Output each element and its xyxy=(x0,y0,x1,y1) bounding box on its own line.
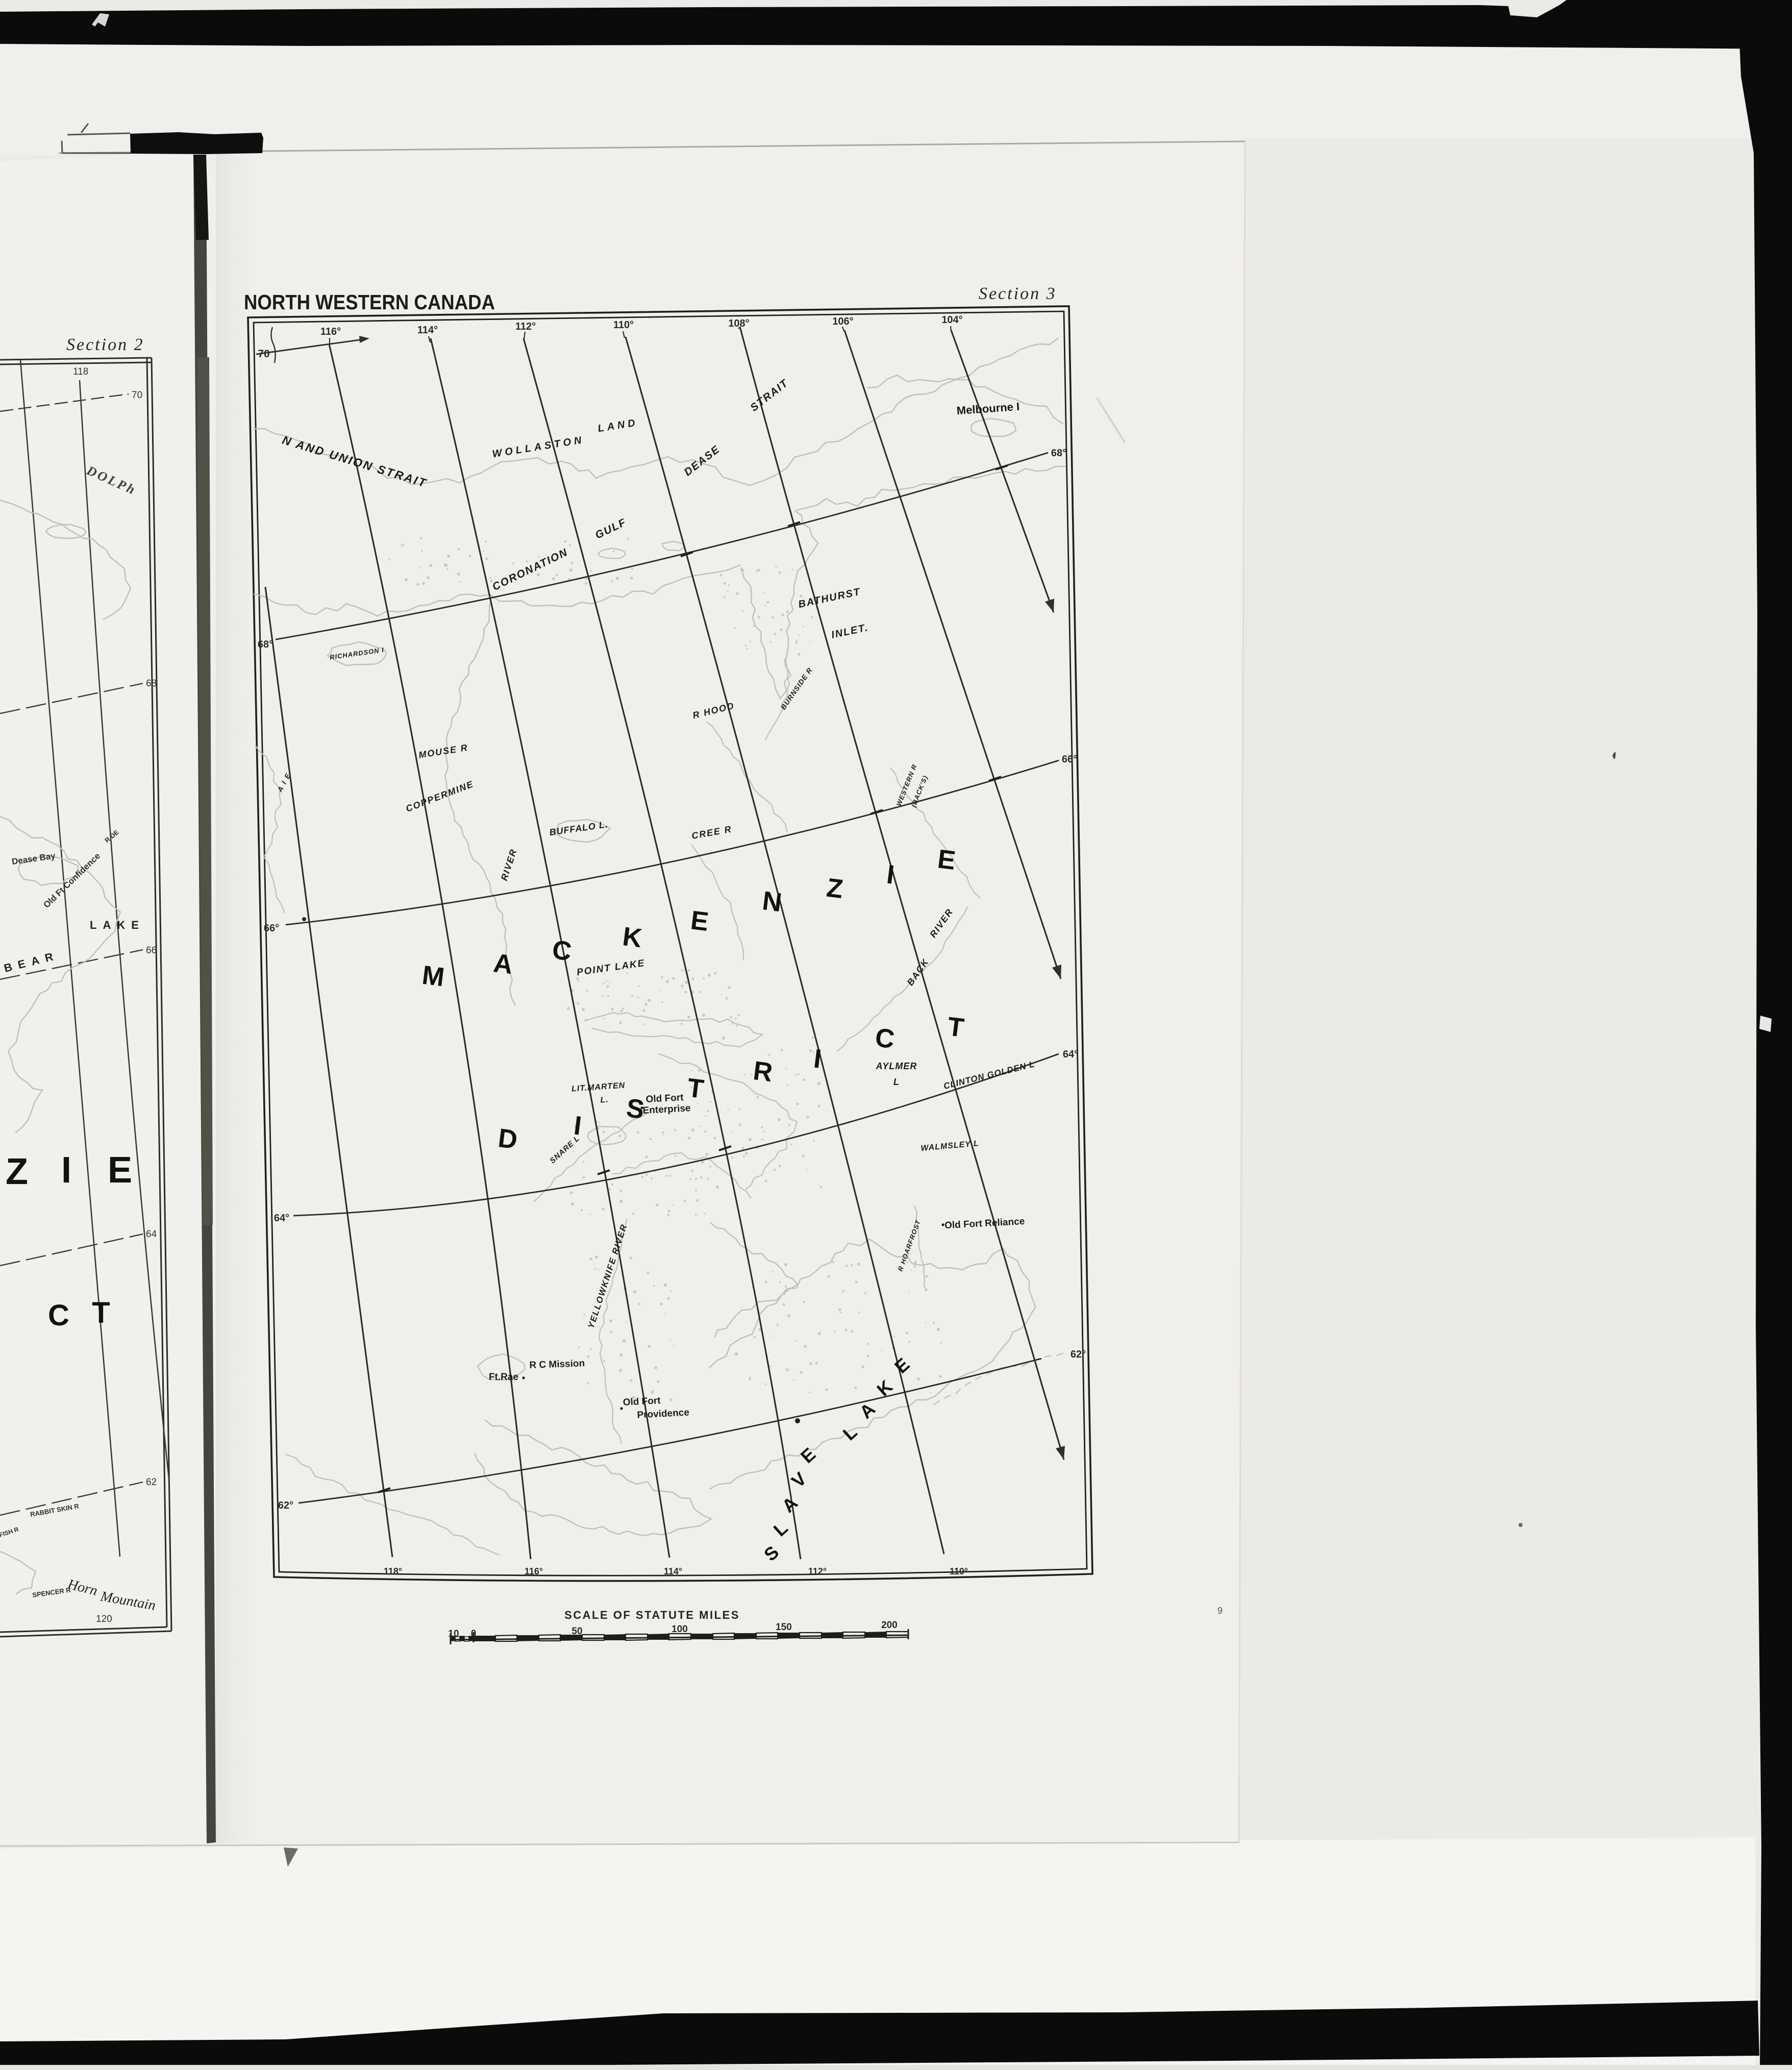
svg-text:62: 62 xyxy=(146,1477,157,1488)
svg-text:I: I xyxy=(61,1150,71,1191)
svg-text:M: M xyxy=(420,960,446,993)
svg-text:0: 0 xyxy=(471,1629,477,1639)
svg-text:SCALE OF STATUTE MILES: SCALE OF STATUTE MILES xyxy=(564,1609,740,1621)
svg-text:NORTH WESTERN CANADA: NORTH WESTERN CANADA xyxy=(244,290,495,314)
svg-text:120: 120 xyxy=(96,1614,112,1624)
svg-text:112°: 112° xyxy=(515,321,536,332)
svg-text:50: 50 xyxy=(571,1626,582,1637)
svg-text:118°: 118° xyxy=(384,1566,402,1576)
svg-text:104°: 104° xyxy=(941,314,962,326)
svg-text:Section 3: Section 3 xyxy=(979,284,1057,303)
svg-text:LAKE: LAKE xyxy=(90,919,145,931)
svg-text:64°: 64° xyxy=(274,1213,289,1224)
svg-text:R C Mission: R C Mission xyxy=(529,1358,585,1371)
svg-text:K: K xyxy=(621,922,644,953)
svg-text:68°: 68° xyxy=(258,639,273,650)
svg-text:T: T xyxy=(92,1296,110,1329)
svg-text:68°: 68° xyxy=(1051,448,1066,459)
svg-text:Section 2: Section 2 xyxy=(66,335,144,354)
svg-text:110°: 110° xyxy=(613,319,634,331)
svg-text:66°: 66° xyxy=(264,923,279,934)
svg-text:64: 64 xyxy=(146,1229,157,1240)
svg-text:68: 68 xyxy=(146,678,157,689)
svg-text:9: 9 xyxy=(1217,1606,1223,1616)
svg-text:70: 70 xyxy=(258,348,269,360)
svg-text:64°: 64° xyxy=(1063,1049,1078,1060)
svg-text:106°: 106° xyxy=(832,316,853,327)
svg-text:E: E xyxy=(689,905,710,937)
svg-text:E: E xyxy=(936,844,957,876)
svg-text:Z: Z xyxy=(6,1151,28,1192)
svg-text:116°: 116° xyxy=(320,326,341,337)
svg-text:70: 70 xyxy=(132,390,142,401)
svg-text:200: 200 xyxy=(881,1620,898,1631)
svg-text:62°: 62° xyxy=(278,1500,293,1511)
svg-text:D: D xyxy=(496,1123,519,1155)
svg-text:AYLMER: AYLMER xyxy=(876,1061,917,1071)
svg-text:E: E xyxy=(108,1150,132,1191)
svg-text:•: • xyxy=(522,1373,525,1383)
svg-text:10: 10 xyxy=(448,1629,459,1639)
svg-text:N: N xyxy=(761,886,783,918)
svg-text:62°: 62° xyxy=(1071,1349,1086,1360)
svg-text:66°: 66° xyxy=(1062,754,1077,765)
svg-text:C: C xyxy=(48,1299,69,1332)
svg-text:C: C xyxy=(551,935,573,967)
svg-text:Old Fort: Old Fort xyxy=(623,1395,661,1408)
svg-text:118: 118 xyxy=(73,366,88,377)
svg-text:S: S xyxy=(625,1093,645,1125)
svg-text:Old Fort: Old Fort xyxy=(645,1092,684,1105)
svg-text:114°: 114° xyxy=(417,325,438,336)
svg-text:100: 100 xyxy=(671,1624,688,1635)
svg-text:66: 66 xyxy=(146,945,157,956)
svg-text:L: L xyxy=(893,1077,900,1087)
svg-text:110°: 110° xyxy=(950,1566,968,1576)
svg-text:116°: 116° xyxy=(525,1566,543,1576)
svg-text:C: C xyxy=(874,1023,896,1054)
svg-text:R: R xyxy=(752,1056,774,1088)
svg-text:114°: 114° xyxy=(664,1566,682,1576)
svg-text:A: A xyxy=(492,948,514,980)
svg-text:L.: L. xyxy=(600,1095,609,1104)
svg-text:Ft.Rae: Ft.Rae xyxy=(489,1372,518,1383)
svg-text:112°: 112° xyxy=(808,1566,827,1576)
svg-text:150: 150 xyxy=(776,1622,792,1633)
